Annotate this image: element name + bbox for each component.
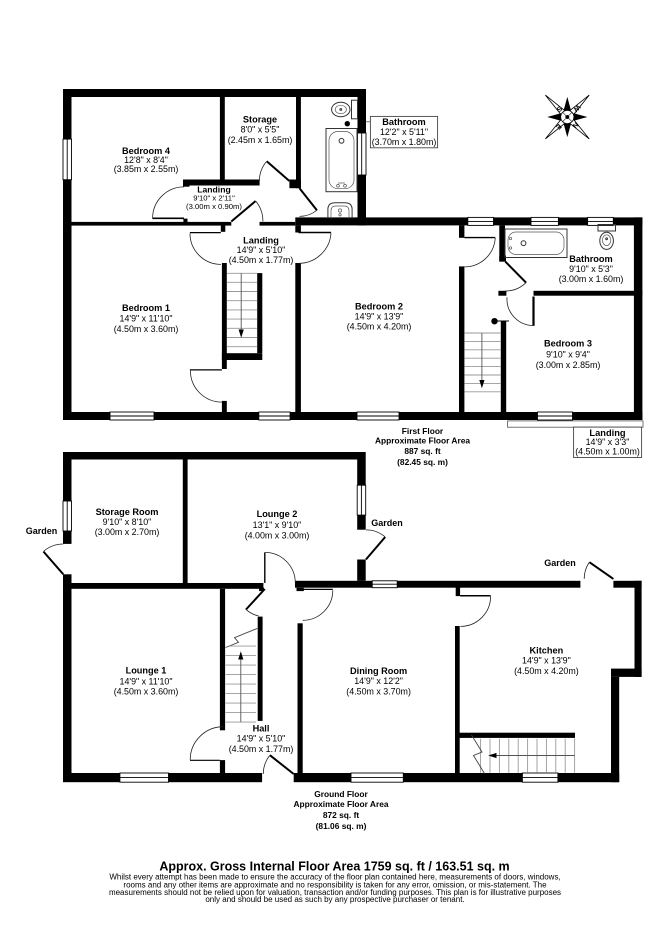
svg-text:Approximate Floor Area: Approximate Floor Area — [293, 799, 388, 809]
svg-text:14'9" x 11'10": 14'9" x 11'10" — [120, 314, 173, 324]
svg-text:Garden: Garden — [26, 526, 58, 536]
svg-text:(4.50m x 1.00m): (4.50m x 1.00m) — [575, 447, 640, 457]
svg-text:Storage: Storage — [243, 115, 277, 125]
svg-text:Bedroom 1: Bedroom 1 — [122, 303, 170, 313]
svg-text:Ground Floor: Ground Floor — [314, 789, 368, 799]
svg-text:8'0" x 5'5": 8'0" x 5'5" — [241, 125, 280, 135]
svg-text:Garden: Garden — [544, 558, 576, 568]
svg-text:Lounge 1: Lounge 1 — [126, 666, 167, 676]
svg-text:13'1" x 9'10": 13'1" x 9'10" — [253, 520, 302, 530]
svg-text:Bedroom 3: Bedroom 3 — [544, 339, 592, 349]
svg-text:14'9" x 5'10": 14'9" x 5'10" — [237, 245, 286, 255]
svg-text:14'9" x 5'10": 14'9" x 5'10" — [237, 733, 286, 743]
svg-text:9'10" x 9'4": 9'10" x 9'4" — [546, 349, 590, 359]
svg-text:(82.45 sq. m): (82.45 sq. m) — [397, 457, 448, 467]
svg-text:(3.00m x 2.85m): (3.00m x 2.85m) — [536, 360, 601, 370]
svg-text:14'9" x 12'2": 14'9" x 12'2" — [354, 676, 403, 686]
svg-text:(4.50m x 3.60m): (4.50m x 3.60m) — [114, 686, 179, 696]
svg-text:(3.00m x 1.60m): (3.00m x 1.60m) — [559, 274, 624, 284]
svg-text:only and should be used as suc: only and should be used as such by any p… — [205, 895, 464, 904]
svg-text:(4.50m x 3.60m): (4.50m x 3.60m) — [114, 324, 179, 334]
svg-text:(4.50m x 4.20m): (4.50m x 4.20m) — [347, 322, 412, 332]
svg-text:Storage Room: Storage Room — [96, 507, 159, 517]
svg-text:(4.00m x 3.00m): (4.00m x 3.00m) — [245, 530, 310, 540]
svg-text:Bathroom: Bathroom — [382, 117, 425, 127]
svg-text:872 sq. ft: 872 sq. ft — [323, 810, 360, 820]
svg-text:(4.50m x 4.20m): (4.50m x 4.20m) — [514, 666, 579, 676]
svg-text:14'9" x 11'10": 14'9" x 11'10" — [120, 676, 173, 686]
svg-text:(4.50m x 1.77m): (4.50m x 1.77m) — [229, 744, 294, 754]
svg-text:14'9" x 13'9": 14'9" x 13'9" — [355, 312, 404, 322]
svg-text:(4.50m x 3.70m): (4.50m x 3.70m) — [346, 687, 411, 697]
svg-text:First Floor: First Floor — [402, 426, 444, 436]
svg-text:Dining Room: Dining Room — [350, 666, 407, 676]
svg-text:9'10" x 5'3": 9'10" x 5'3" — [569, 264, 613, 274]
svg-text:Kitchen: Kitchen — [530, 646, 564, 656]
svg-text:Bathroom: Bathroom — [569, 254, 612, 264]
svg-text:Approx. Gross Internal Floor A: Approx. Gross Internal Floor Area 1759 s… — [159, 860, 509, 874]
svg-text:14'9" x 3'3": 14'9" x 3'3" — [586, 437, 630, 447]
svg-text:Lounge 2: Lounge 2 — [257, 509, 298, 519]
svg-text:Hall: Hall — [253, 723, 270, 733]
svg-text:Bedroom 2: Bedroom 2 — [355, 302, 403, 312]
svg-text:14'9" x 13'9": 14'9" x 13'9" — [522, 656, 571, 666]
svg-text:(3.85m x 2.55m): (3.85m x 2.55m) — [114, 164, 179, 174]
svg-text:887 sq. ft: 887 sq. ft — [404, 446, 441, 456]
svg-text:(3.00m x 0.90m): (3.00m x 0.90m) — [186, 202, 242, 211]
svg-text:(3.00m x 2.70m): (3.00m x 2.70m) — [95, 527, 160, 537]
svg-text:12'2" x 5'11": 12'2" x 5'11" — [380, 127, 428, 137]
svg-text:(3.70m x 1.80m): (3.70m x 1.80m) — [372, 137, 437, 147]
svg-text:(4.50m x 1.77m): (4.50m x 1.77m) — [229, 255, 294, 265]
svg-text:(2.45m x 1.65m): (2.45m x 1.65m) — [228, 135, 293, 145]
svg-text:(81.06 sq. m): (81.06 sq. m) — [316, 821, 367, 831]
svg-text:Approximate Floor Area: Approximate Floor Area — [375, 436, 470, 446]
svg-text:Garden: Garden — [371, 518, 403, 528]
svg-text:9'10" x 8'10": 9'10" x 8'10" — [103, 517, 152, 527]
